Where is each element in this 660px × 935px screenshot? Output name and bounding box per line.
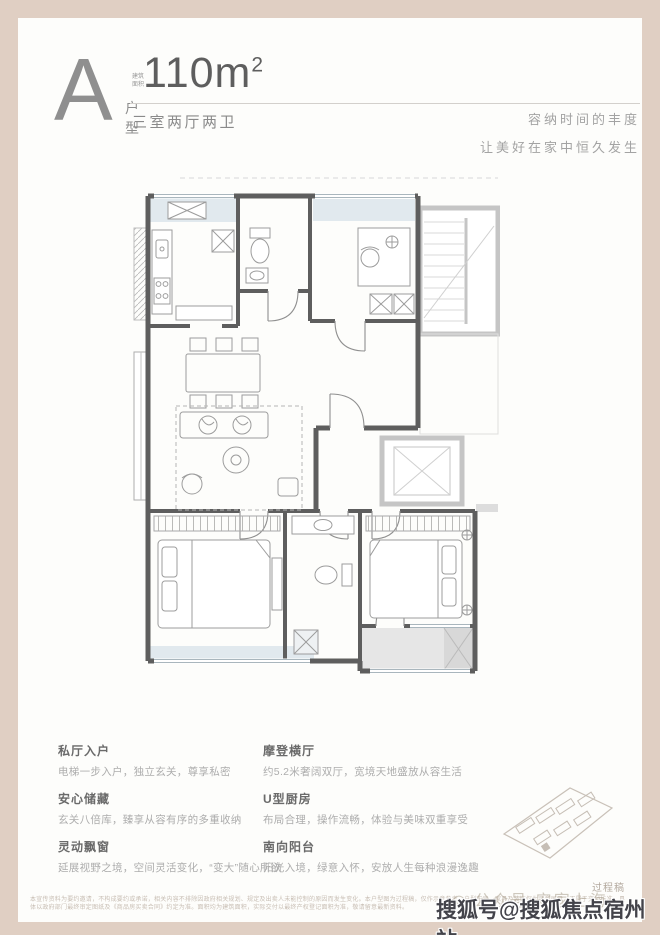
entry-door xyxy=(330,394,364,428)
feature-desc: 约5.2米奢阔双厅，宽境天地盛放从容生活 xyxy=(263,764,468,779)
master-bedroom xyxy=(154,516,282,628)
feature-title: U型厨房 xyxy=(263,790,468,807)
dining-table xyxy=(186,338,260,408)
plant-symbol xyxy=(462,530,472,615)
bedroom2-wardrobe xyxy=(366,516,470,531)
feature-desc: 玄关八倍库，臻享从容有序的多重收纳 xyxy=(58,812,263,827)
feature-living-hall: 摩登横厅 约5.2米奢阔双厅，宽境天地盛放从容生活 xyxy=(263,742,468,779)
feature-title: 南向阳台 xyxy=(263,838,468,855)
master-wardrobe xyxy=(154,516,280,531)
feature-balcony: 南向阳台 阳光入境，绿意入怀，安放人生每种浪漫逸趣 xyxy=(263,838,468,875)
study-room xyxy=(358,228,414,314)
feature-title: 摩登横厅 xyxy=(263,742,468,759)
coffee-table xyxy=(223,447,249,473)
bedroom-2 xyxy=(366,516,472,618)
feature-title: 安心储藏 xyxy=(58,790,263,807)
bathroom-2 xyxy=(292,516,354,654)
stairwell xyxy=(420,208,498,334)
unit-type-letter: A xyxy=(54,46,113,134)
elevator-lobby xyxy=(420,334,498,434)
feature-title: 灵动飘窗 xyxy=(58,838,263,855)
sofa xyxy=(180,412,268,438)
study-window-seat xyxy=(313,199,415,221)
master-bay-window xyxy=(150,646,314,660)
feature-desc: 阳光入境，绿意入怀，安放人生每种浪漫逸趣 xyxy=(263,860,468,875)
feature-kitchen: U型厨房 布局合理，操作流畅，体验与美味双重享受 xyxy=(263,790,468,827)
ghost-wall-stub xyxy=(476,504,498,512)
siteplan-sketch xyxy=(498,782,618,862)
bed-bench xyxy=(272,558,282,610)
balcony xyxy=(362,628,473,670)
living-room xyxy=(176,406,302,510)
feature-desc: 延展视野之境，空间灵活变化，“变大”随心所欲 xyxy=(58,860,263,875)
area-superscript: 2 xyxy=(251,54,264,77)
feature-desc: 电梯一步入户，独立玄关，尊享私密 xyxy=(58,764,263,779)
floorplan-drawing xyxy=(120,166,500,706)
master-bed xyxy=(158,540,270,628)
header-divider xyxy=(130,103,640,104)
bedroom2-bed xyxy=(370,540,462,618)
brochure-page: A 户型 建筑面积 110m2 三室两厅两卫 容纳时间的丰度 让美好在家中恒久发… xyxy=(0,0,660,935)
area-number: 110m xyxy=(143,49,251,97)
slogan-line1: 容纳时间的丰度 xyxy=(300,109,640,128)
feature-storage: 安心储藏 玄关八倍库，臻享从容有序的多重收纳 xyxy=(58,790,263,827)
area-value: 110m2 xyxy=(143,52,264,95)
slogan-line2: 让美好在家中恒久发生 xyxy=(300,137,640,156)
feature-title: 私厅入户 xyxy=(58,742,263,759)
side-table xyxy=(278,478,298,496)
feature-bay-window: 灵动飘窗 延展视野之境，空间灵活变化，“变大”随心所欲 xyxy=(58,838,263,875)
bathroom-1 xyxy=(246,228,270,283)
feature-private-entry: 私厅入户 电梯一步入户，独立玄关，尊享私密 xyxy=(58,742,263,779)
slogan-block: 容纳时间的丰度 让美好在家中恒久发生 xyxy=(300,109,640,156)
elevator xyxy=(382,438,462,504)
watermark-front: 搜狐号@搜狐焦点宿州站 xyxy=(436,894,660,935)
accent-chair xyxy=(182,474,202,494)
layout-spec: 三室两厅两卫 xyxy=(132,111,237,132)
feature-desc: 布局合理，操作流畅，体验与美味双重享受 xyxy=(263,812,468,827)
